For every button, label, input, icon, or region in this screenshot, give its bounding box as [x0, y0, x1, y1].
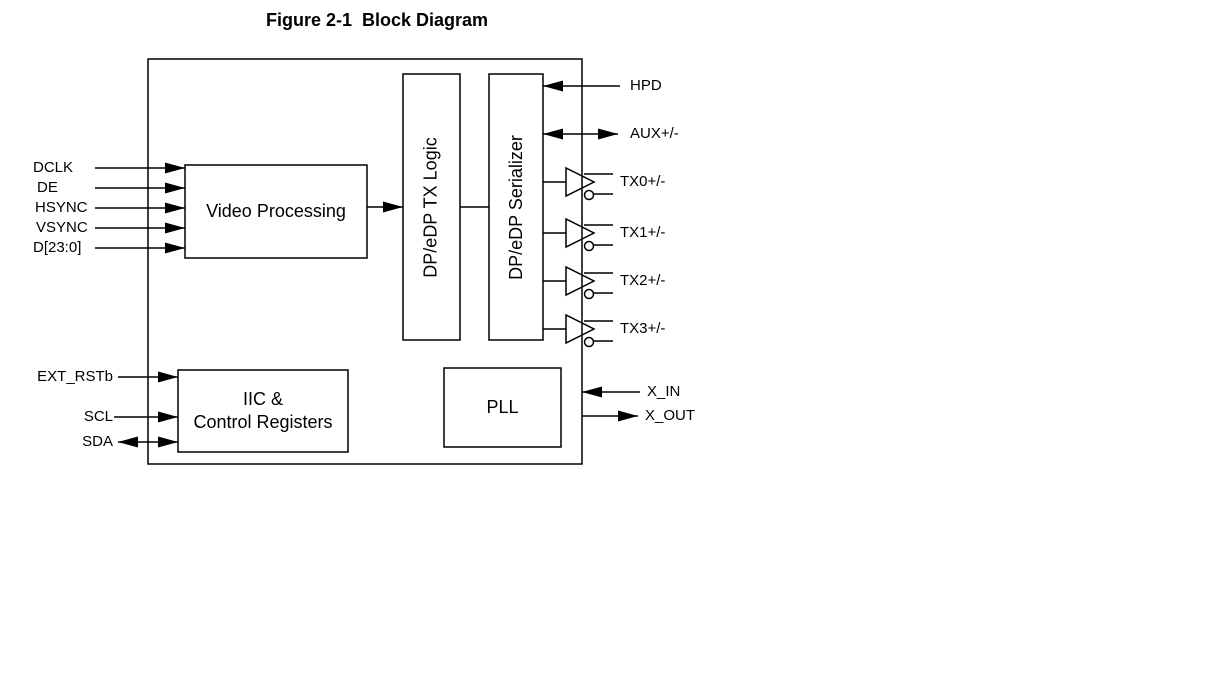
iic-label-line2: Control Registers	[193, 411, 332, 434]
tx0-buffer-icon	[543, 168, 613, 200]
block-diagram-figure: Figure 2-1 Block Diagram	[0, 0, 1230, 692]
pin-label-tx1: TX1+/-	[620, 223, 665, 243]
pin-label-hpd: HPD	[630, 76, 662, 96]
tx3-buffer-icon	[543, 315, 613, 347]
pin-label-de: DE	[37, 178, 58, 198]
pin-label-sda: SDA	[20, 432, 113, 452]
pin-label-vsync: VSYNC	[36, 218, 88, 238]
pll-label: PLL	[486, 397, 518, 418]
iic-control-registers-block: IIC & Control Registers	[178, 370, 348, 452]
pin-label-hsync: HSYNC	[35, 198, 88, 218]
dp-edp-serializer-label: DP/eDP Serializer	[506, 135, 527, 280]
pin-label-tx3: TX3+/-	[620, 319, 665, 339]
dp-edp-tx-logic-label: DP/eDP TX Logic	[421, 137, 442, 277]
video-processing-label: Video Processing	[206, 201, 346, 222]
pin-label-ext-rstb: EXT_RSTb	[20, 367, 113, 387]
dp-edp-serializer-block: DP/eDP Serializer	[489, 74, 543, 340]
pll-block: PLL	[444, 368, 561, 447]
pin-label-x-out: X_OUT	[645, 406, 695, 426]
pin-label-scl: SCL	[20, 407, 113, 427]
pin-label-tx0: TX0+/-	[620, 172, 665, 192]
diagram-linework	[0, 0, 1230, 692]
pin-label-tx2: TX2+/-	[620, 271, 665, 291]
tx1-buffer-icon	[543, 219, 613, 251]
iic-label-line1: IIC &	[243, 388, 283, 411]
video-processing-block: Video Processing	[185, 165, 367, 258]
tx2-buffer-icon	[543, 267, 613, 299]
pin-label-dclk: DCLK	[33, 158, 73, 178]
dp-edp-tx-logic-block: DP/eDP TX Logic	[403, 74, 460, 340]
pin-label-aux: AUX+/-	[630, 124, 679, 144]
pin-label-d23-0: D[23:0]	[33, 238, 81, 258]
pin-label-x-in: X_IN	[647, 382, 680, 402]
